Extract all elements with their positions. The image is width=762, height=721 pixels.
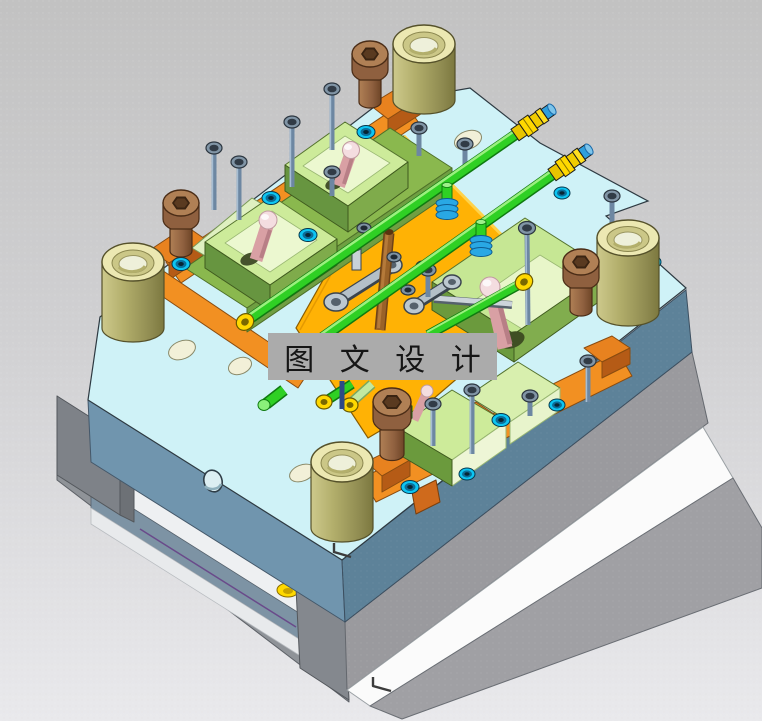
- guide-bushing: [597, 220, 659, 326]
- guide-bushing: [102, 243, 164, 342]
- watermark-band: 图 文 设 计: [268, 333, 497, 380]
- cad-render-canvas: 图 文 设 计: [0, 0, 762, 721]
- watermark-text: 图 文 设 计: [275, 335, 490, 379]
- guide-bushing: [311, 442, 373, 542]
- guide-bushing: [393, 25, 455, 114]
